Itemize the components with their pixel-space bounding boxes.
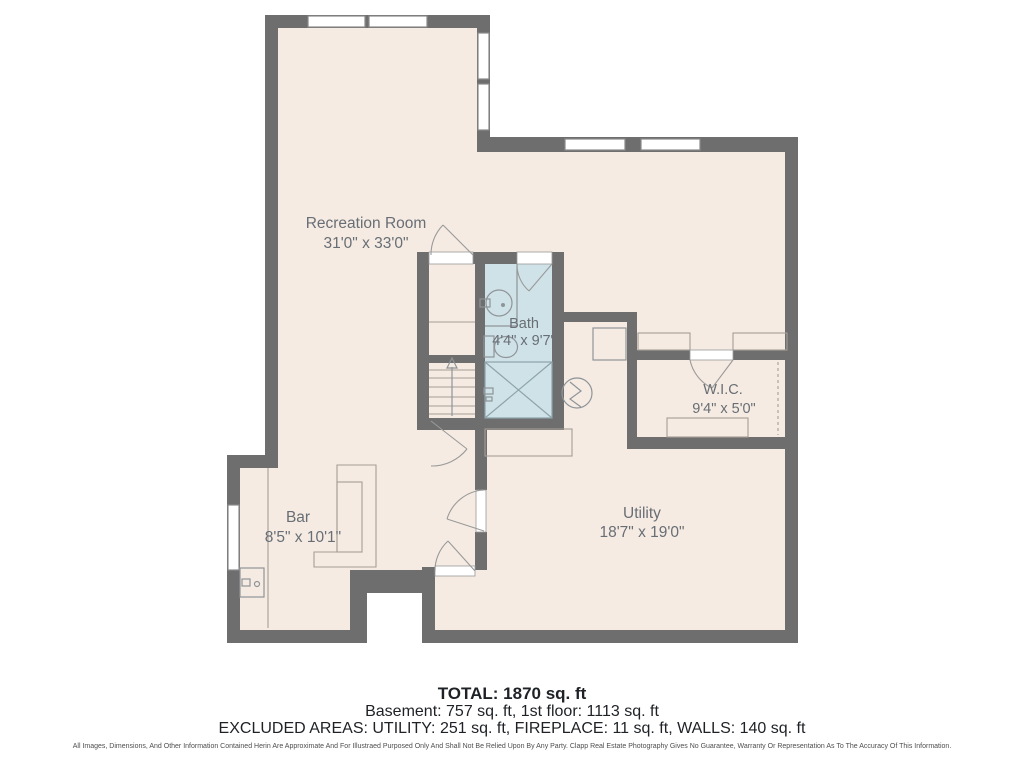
label-wic-dims: 9'4" x 5'0" [692,401,755,417]
floor-plan-page: Recreation Room 31'0" x 33'0" Bath 4'4" … [0,0,1024,768]
window-side-upper [478,33,489,79]
area-breakdown-text: Basement: 757 sq. ft, 1st floor: 1113 sq… [0,703,1024,721]
window-top-left-1 [308,16,365,27]
window-top-right-1 [565,139,625,150]
label-utility-name: Utility [623,505,661,522]
disclaimer-text: All Images, Dimensions, And Other Inform… [0,743,1024,750]
label-bar-name: Bar [286,509,310,526]
total-area-text: TOTAL: 1870 sq. ft [0,684,1024,704]
window-top-left-2 [369,16,427,27]
label-bar-dims: 8'5" x 10'1" [265,529,341,546]
window-top-right-2 [641,139,700,150]
label-wic-name: W.I.C. [703,382,742,398]
label-recreation-name: Recreation Room [306,215,427,232]
window-bar-left [228,505,239,570]
floor-plan-drawing: Recreation Room 31'0" x 33'0" Bath 4'4" … [0,0,1024,670]
label-bath-name: Bath [509,316,539,332]
excluded-areas-text: EXCLUDED AREAS: UTILITY: 251 sq. ft, FIR… [0,720,1024,738]
label-recreation-dims: 31'0" x 33'0" [323,235,408,252]
label-utility-dims: 18'7" x 19'0" [599,524,684,541]
window-side-lower [478,84,489,130]
label-bath-dims: 4'4" x 9'7" [492,333,555,349]
